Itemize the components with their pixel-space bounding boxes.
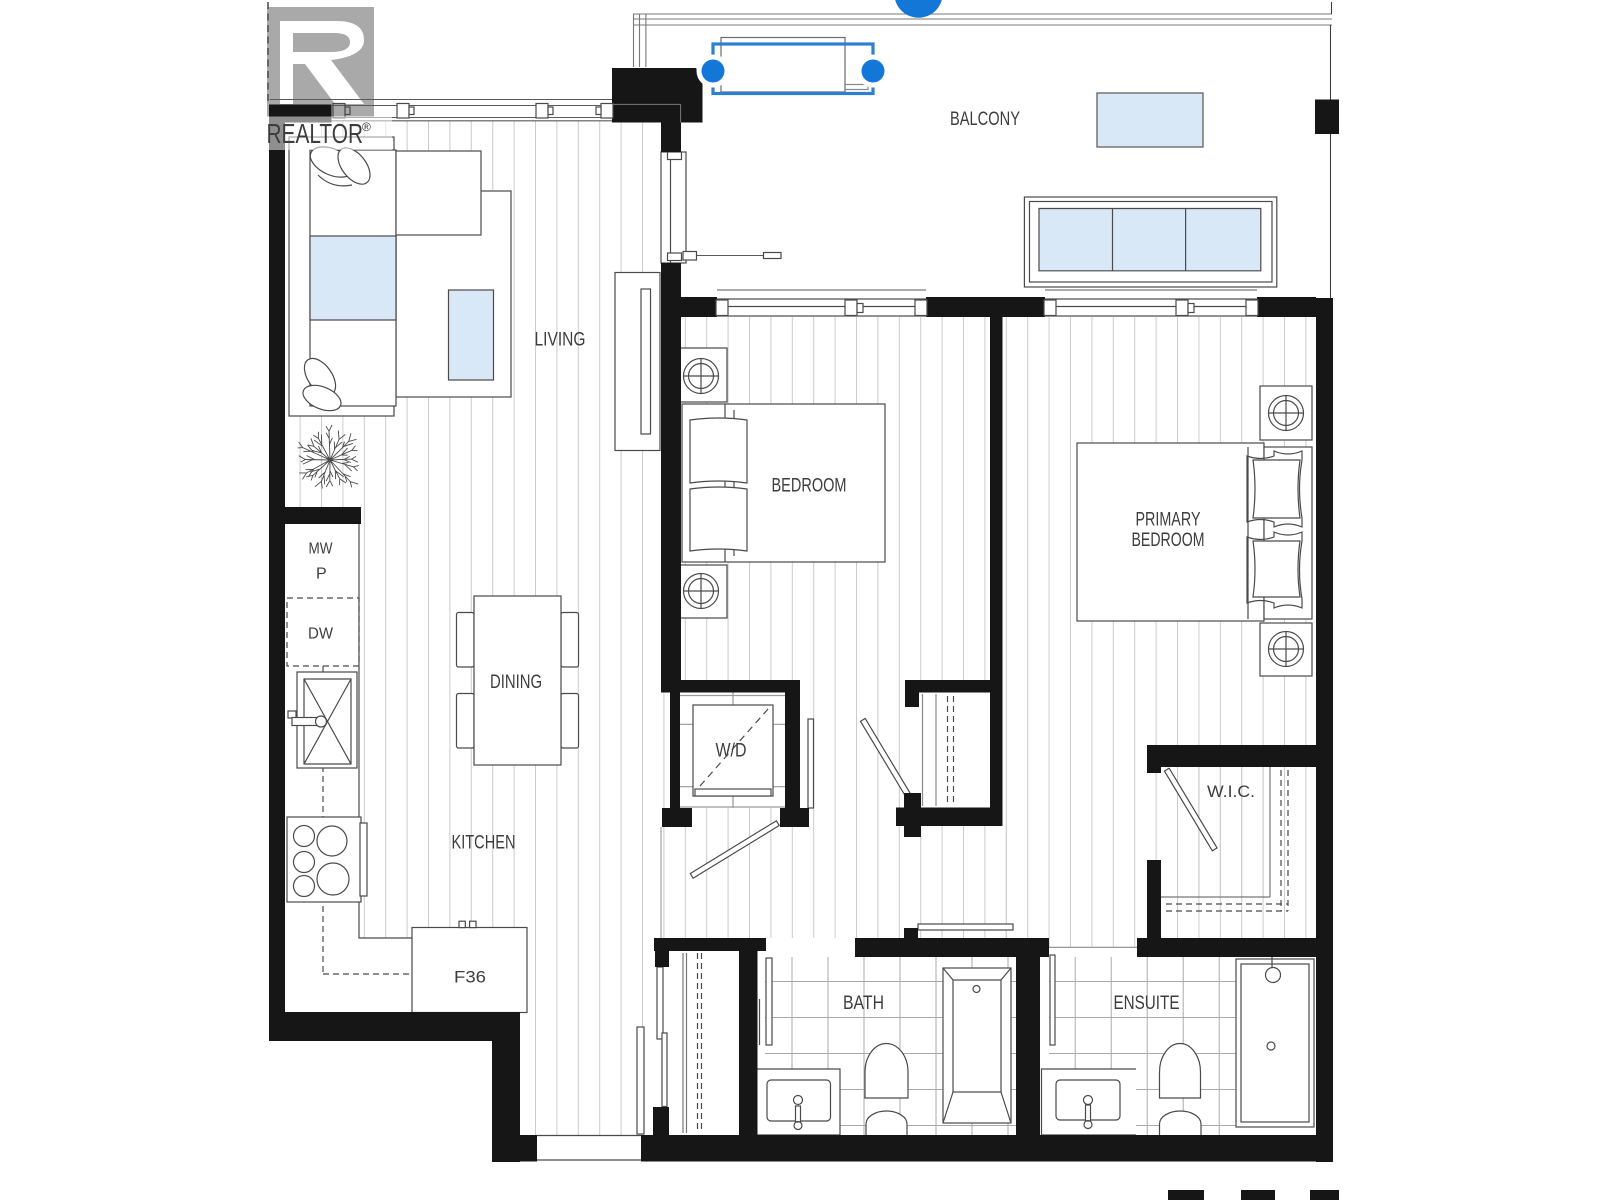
svg-text:DW: DW xyxy=(308,626,334,643)
svg-text:MW: MW xyxy=(309,541,334,558)
svg-text:BEDROOM: BEDROOM xyxy=(1132,529,1205,551)
svg-text:W/D: W/D xyxy=(716,740,747,762)
svg-text:P: P xyxy=(316,566,327,583)
svg-text:REALTOR: REALTOR xyxy=(267,118,364,149)
svg-text:BALCONY: BALCONY xyxy=(950,108,1020,130)
svg-text:F36: F36 xyxy=(454,968,486,987)
svg-text:W.I.C.: W.I.C. xyxy=(1207,783,1255,801)
svg-text:PRIMARY: PRIMARY xyxy=(1136,509,1201,531)
svg-text:®: ® xyxy=(362,120,371,134)
svg-text:BATH: BATH xyxy=(843,992,884,1014)
svg-text:BEDROOM: BEDROOM xyxy=(772,475,847,497)
svg-text:KITCHEN: KITCHEN xyxy=(452,832,516,854)
svg-text:LIVING: LIVING xyxy=(535,329,586,351)
svg-text:DINING: DINING xyxy=(490,671,542,693)
svg-text:ENSUITE: ENSUITE xyxy=(1114,992,1180,1014)
